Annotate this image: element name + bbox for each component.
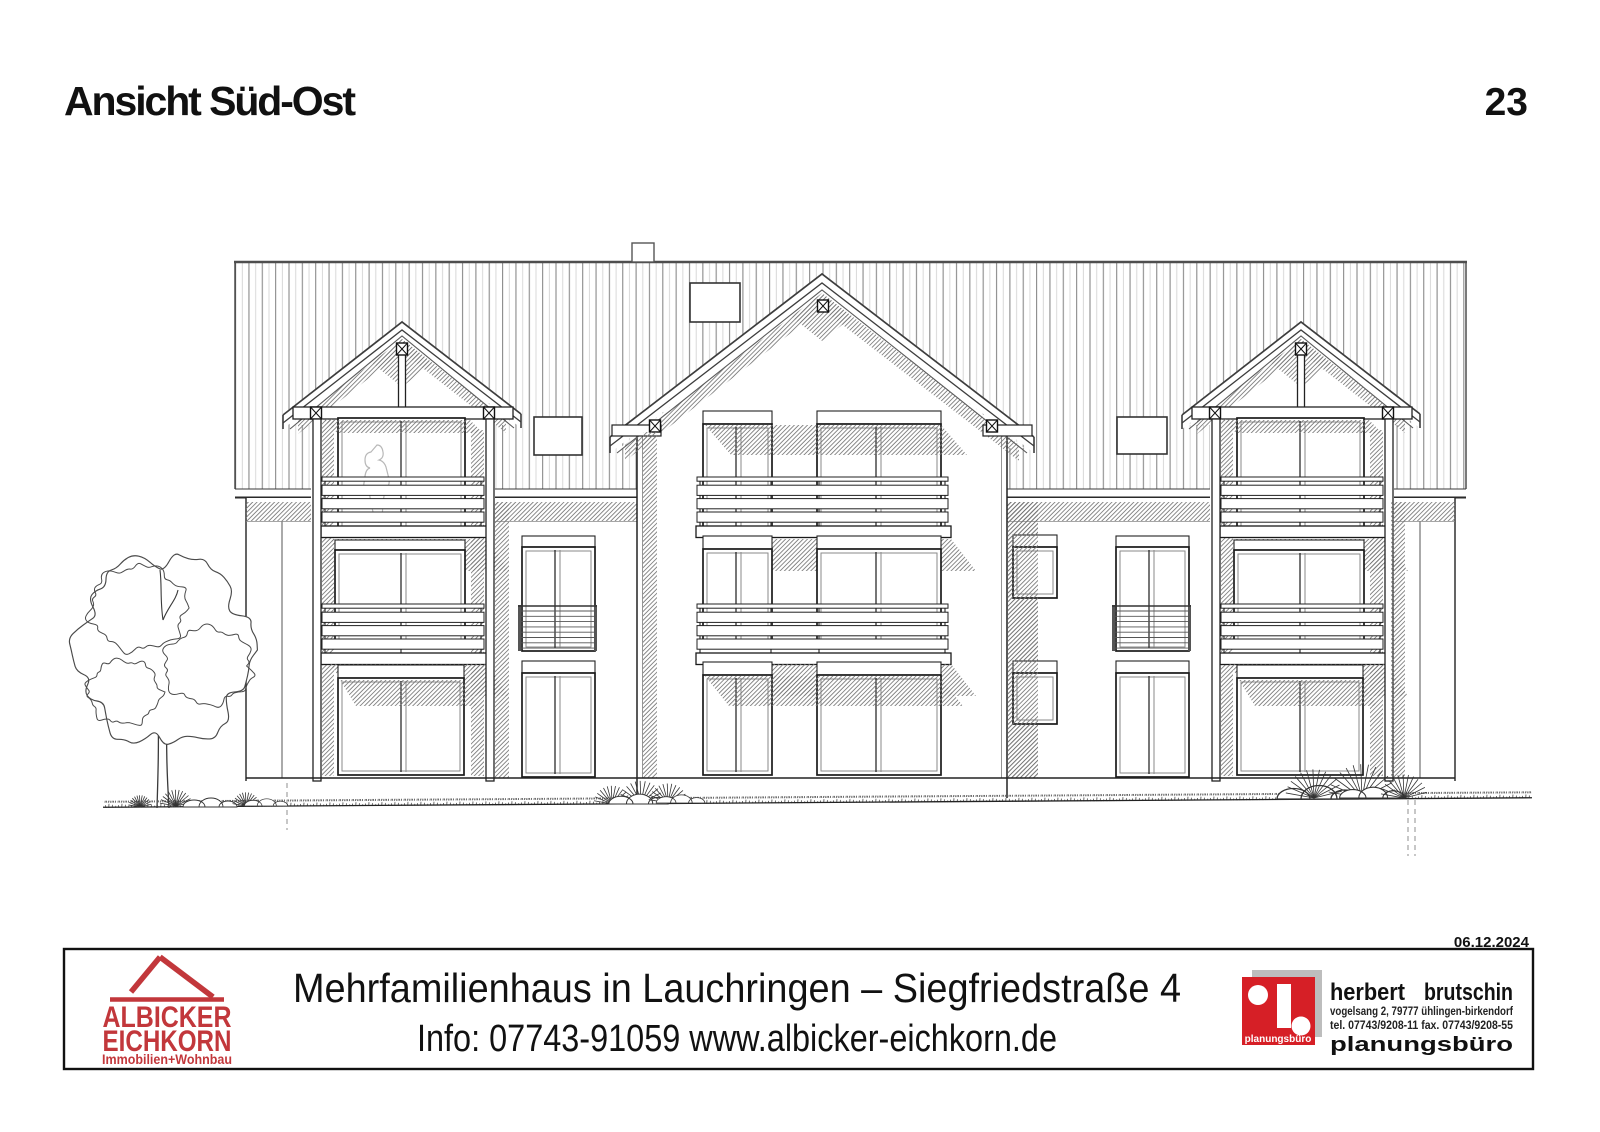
svg-text:23: 23 — [1485, 81, 1528, 124]
svg-text:Immobilien+Wohnbau: Immobilien+Wohnbau — [102, 1052, 232, 1067]
svg-text:planungsbüro: planungsbüro — [1245, 1034, 1312, 1045]
svg-text:planungsbüro: planungsbüro — [1330, 1034, 1513, 1056]
svg-text:brutschin: brutschin — [1424, 979, 1513, 1006]
svg-text:Info: 07743-91059 www.albicker: Info: 07743-91059 www.albicker-eichkorn.… — [417, 1018, 1057, 1060]
svg-text:Ansicht Süd-Ost: Ansicht Süd-Ost — [64, 78, 356, 124]
svg-text:herbert: herbert — [1330, 979, 1405, 1006]
svg-text:Mehrfamilienhaus in Lauchringe: Mehrfamilienhaus in Lauchringen – Siegfr… — [293, 965, 1181, 1011]
svg-text:tel. 07743/9208-11 fax. 07743: tel. 07743/9208-11 fax. 07743/9208-55 — [1330, 1020, 1514, 1032]
svg-text:vogelsang 2, 79777 ühlingen-bi: vogelsang 2, 79777 ühlingen-birkendorf — [1330, 1006, 1513, 1018]
